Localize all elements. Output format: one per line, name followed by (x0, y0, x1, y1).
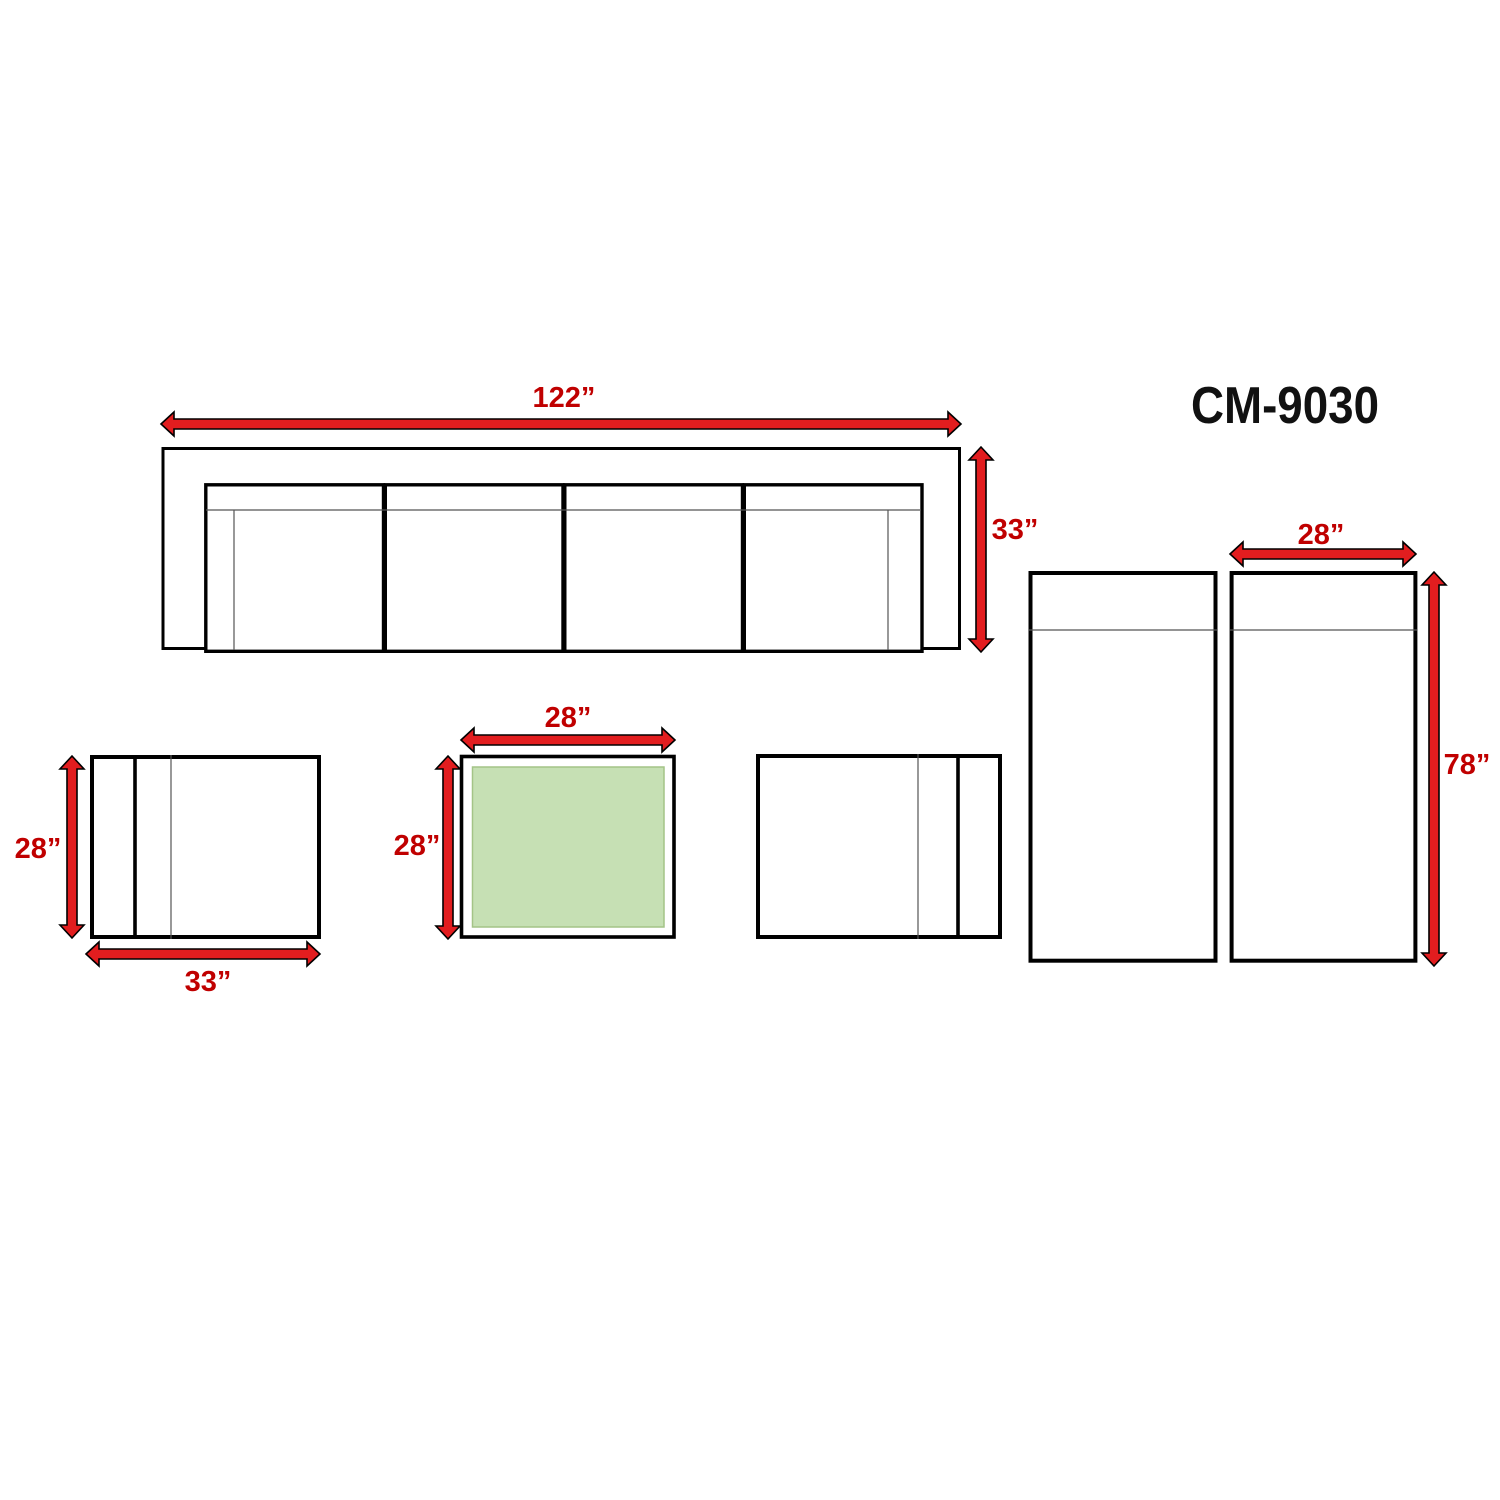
svg-text:33”: 33” (185, 966, 232, 998)
svg-text:78”: 78” (1444, 749, 1491, 781)
svg-text:28”: 28” (545, 702, 592, 734)
svg-text:122”: 122” (533, 382, 596, 414)
svg-text:28”: 28” (15, 833, 62, 865)
svg-text:CM-9030: CM-9030 (1191, 377, 1379, 435)
svg-text:28”: 28” (1298, 519, 1345, 551)
svg-text:33”: 33” (992, 514, 1039, 546)
svg-text:28”: 28” (394, 830, 441, 862)
